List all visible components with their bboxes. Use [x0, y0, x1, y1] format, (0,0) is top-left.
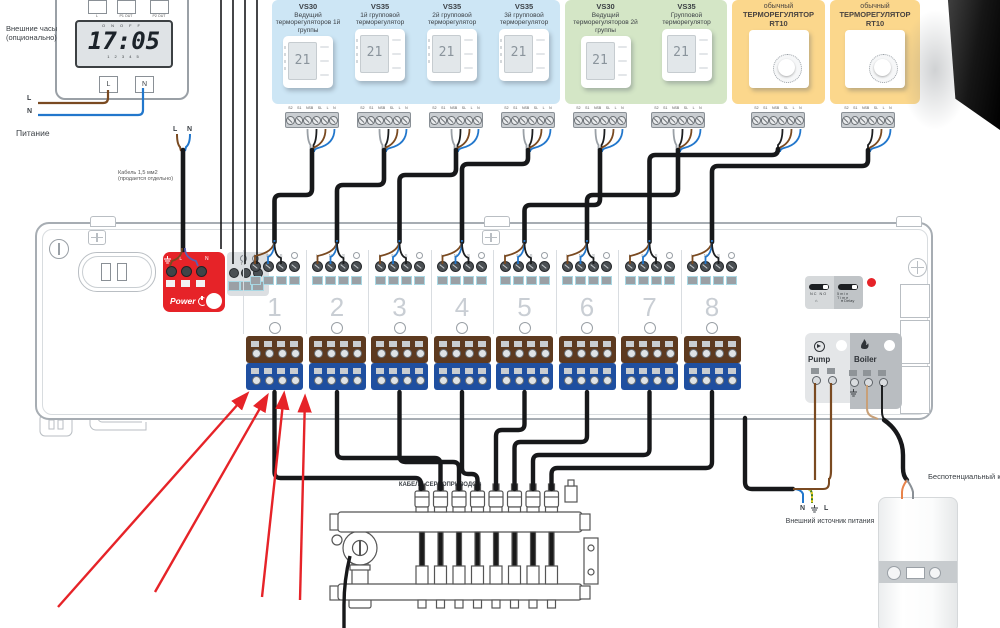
servo-cables — [275, 392, 713, 489]
power-cable — [170, 134, 198, 266]
thermostat-cables — [275, 149, 869, 242]
external-source-wires — [745, 418, 829, 503]
pump-power-cable — [344, 556, 350, 628]
clock-wires — [38, 88, 143, 115]
aux-wires — [221, 0, 257, 264]
boiler-contact-wires — [867, 385, 913, 499]
wiring-layer — [0, 0, 1000, 628]
annotation-arrows — [58, 394, 305, 607]
pump-wires — [815, 383, 831, 480]
wiring-diagram: L P1 OUT P2 OUT ONOFF 17:05 1 2 3 4 5 L … — [0, 0, 1000, 628]
